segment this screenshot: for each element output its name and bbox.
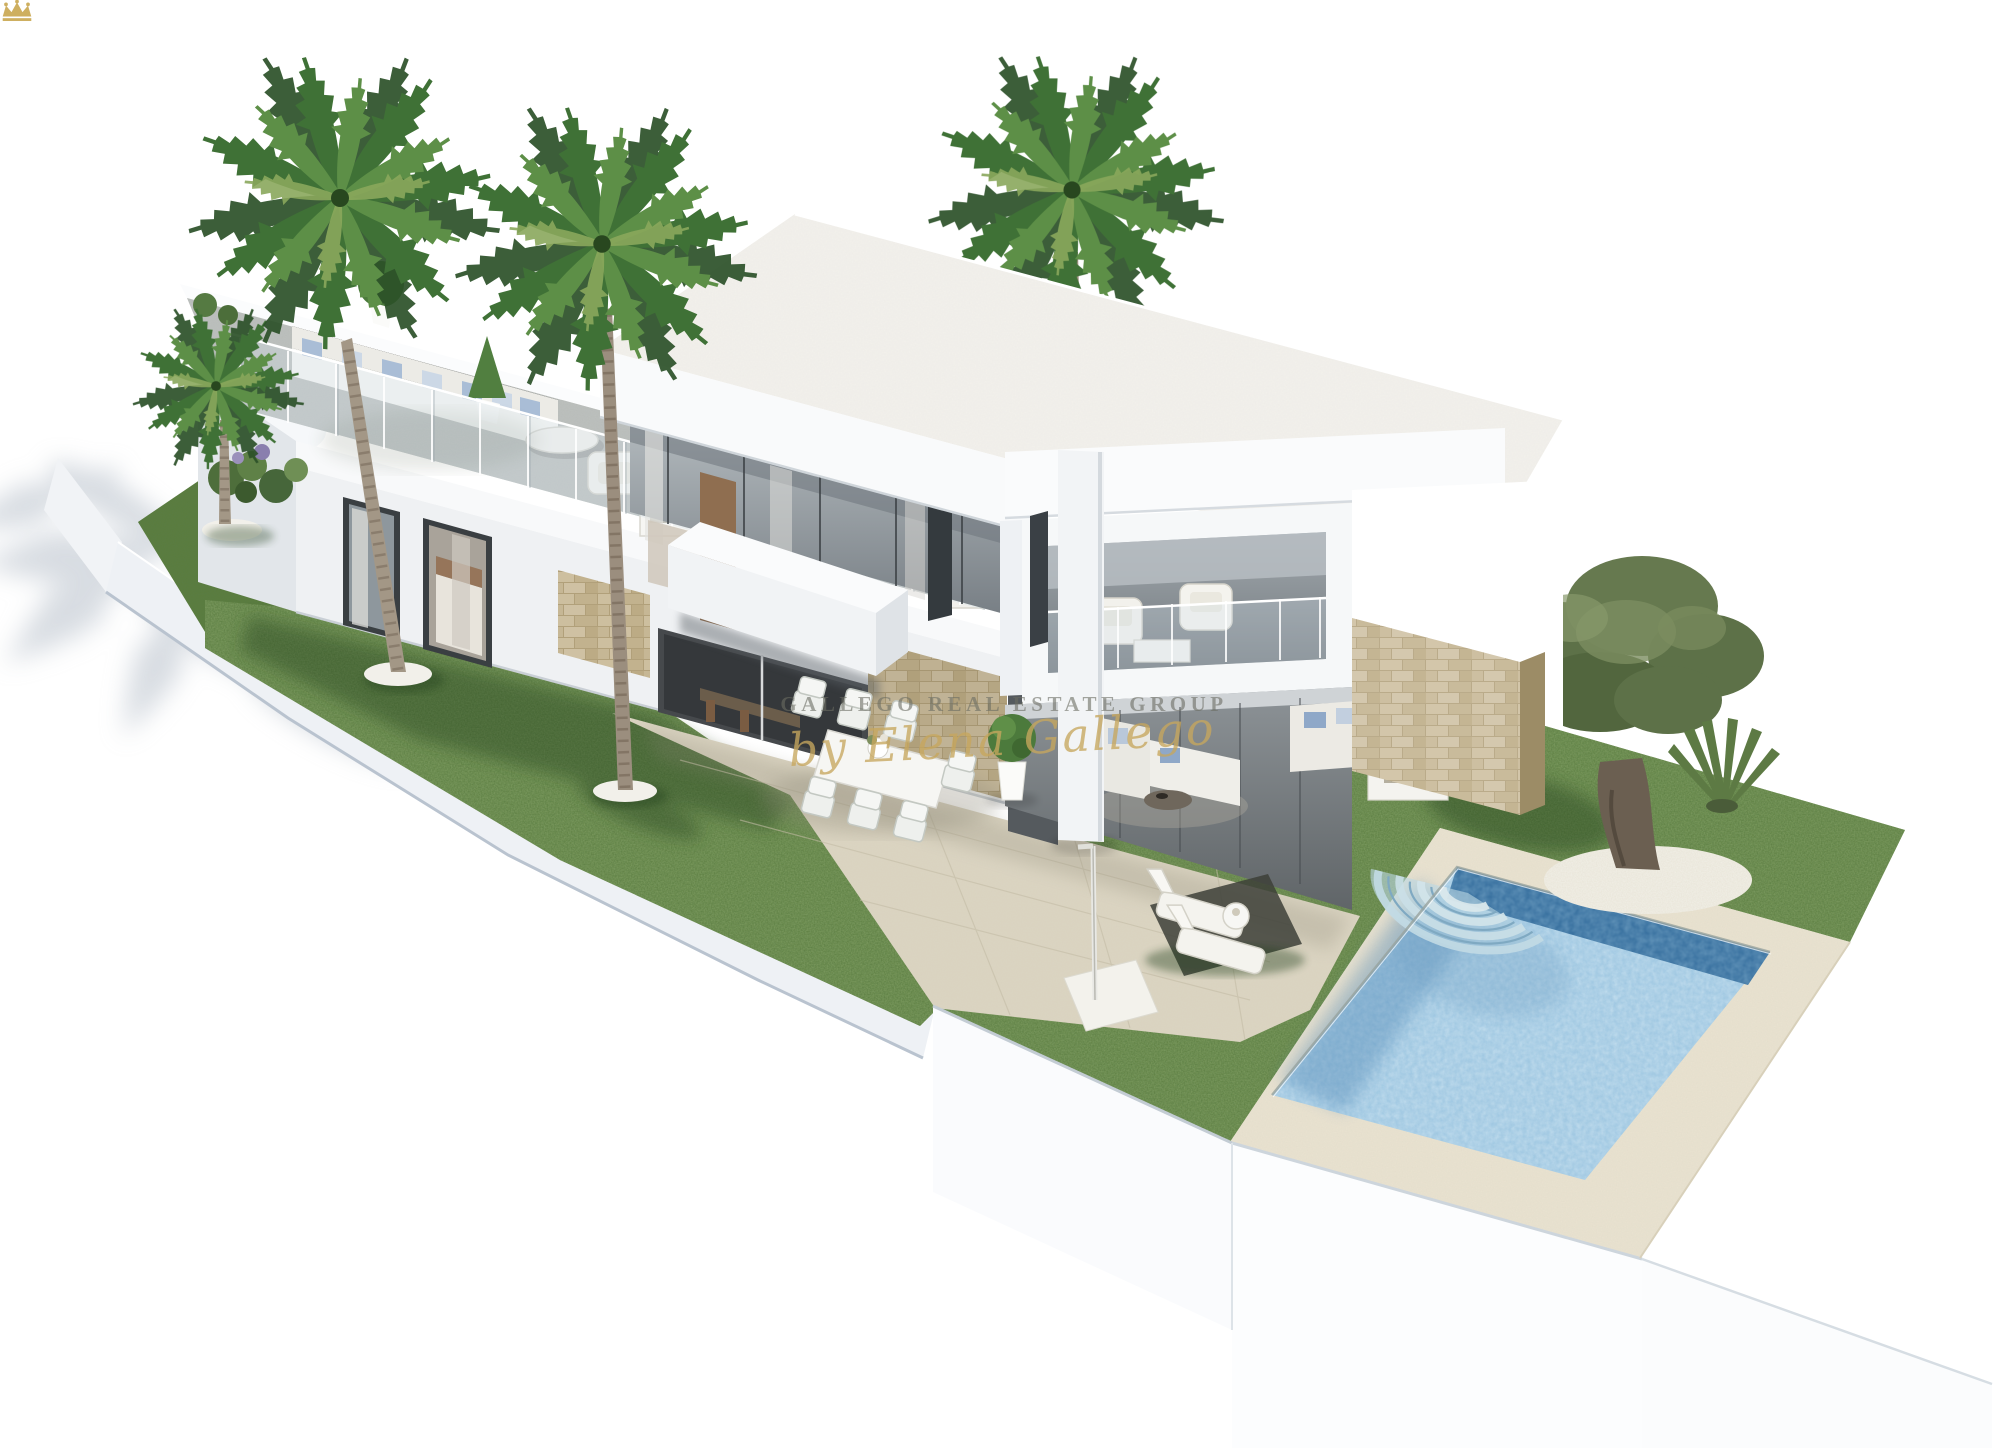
villa-render: GALLEGO REAL ESTATE GROUP by Elena Galle…	[0, 0, 2000, 1448]
villa-render-illustration	[0, 0, 2000, 1448]
slit-window-2	[1030, 511, 1048, 647]
window-bay-2	[423, 518, 492, 668]
lounge-round-table	[1144, 790, 1192, 810]
